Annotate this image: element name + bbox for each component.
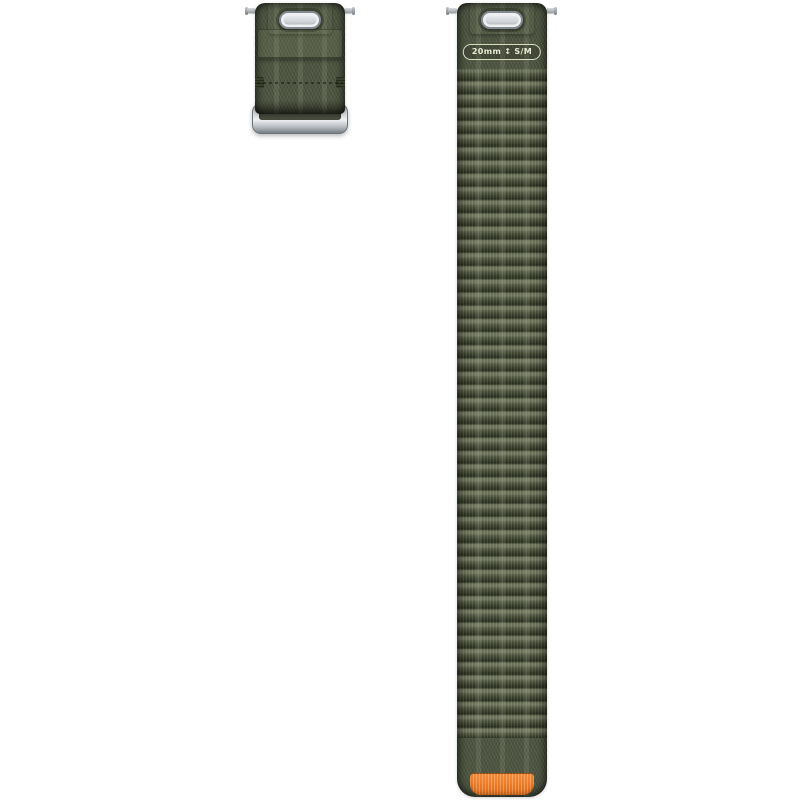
fastener-button [481,11,523,29]
ribbed-texture [457,69,547,738]
short-strap-fabric [255,3,345,114]
fastener-button [279,11,321,29]
length-arrow-icon: ↕ [504,48,511,56]
fold-flap [258,29,342,59]
size-label-width: 20mm [472,48,501,56]
long-strap-fabric: 20mm ↕ S/M [457,3,547,797]
spring-bar-flange-right [352,7,355,15]
orange-tail-tab [470,773,534,795]
product-photo: 20mm ↕ S/M [0,0,800,800]
size-label: 20mm ↕ S/M [463,44,541,60]
spring-bar-pin-left [448,8,457,13]
spring-bar-flange-right [554,7,557,15]
size-label-size: S/M [514,48,532,56]
stitch-seam [257,82,343,84]
